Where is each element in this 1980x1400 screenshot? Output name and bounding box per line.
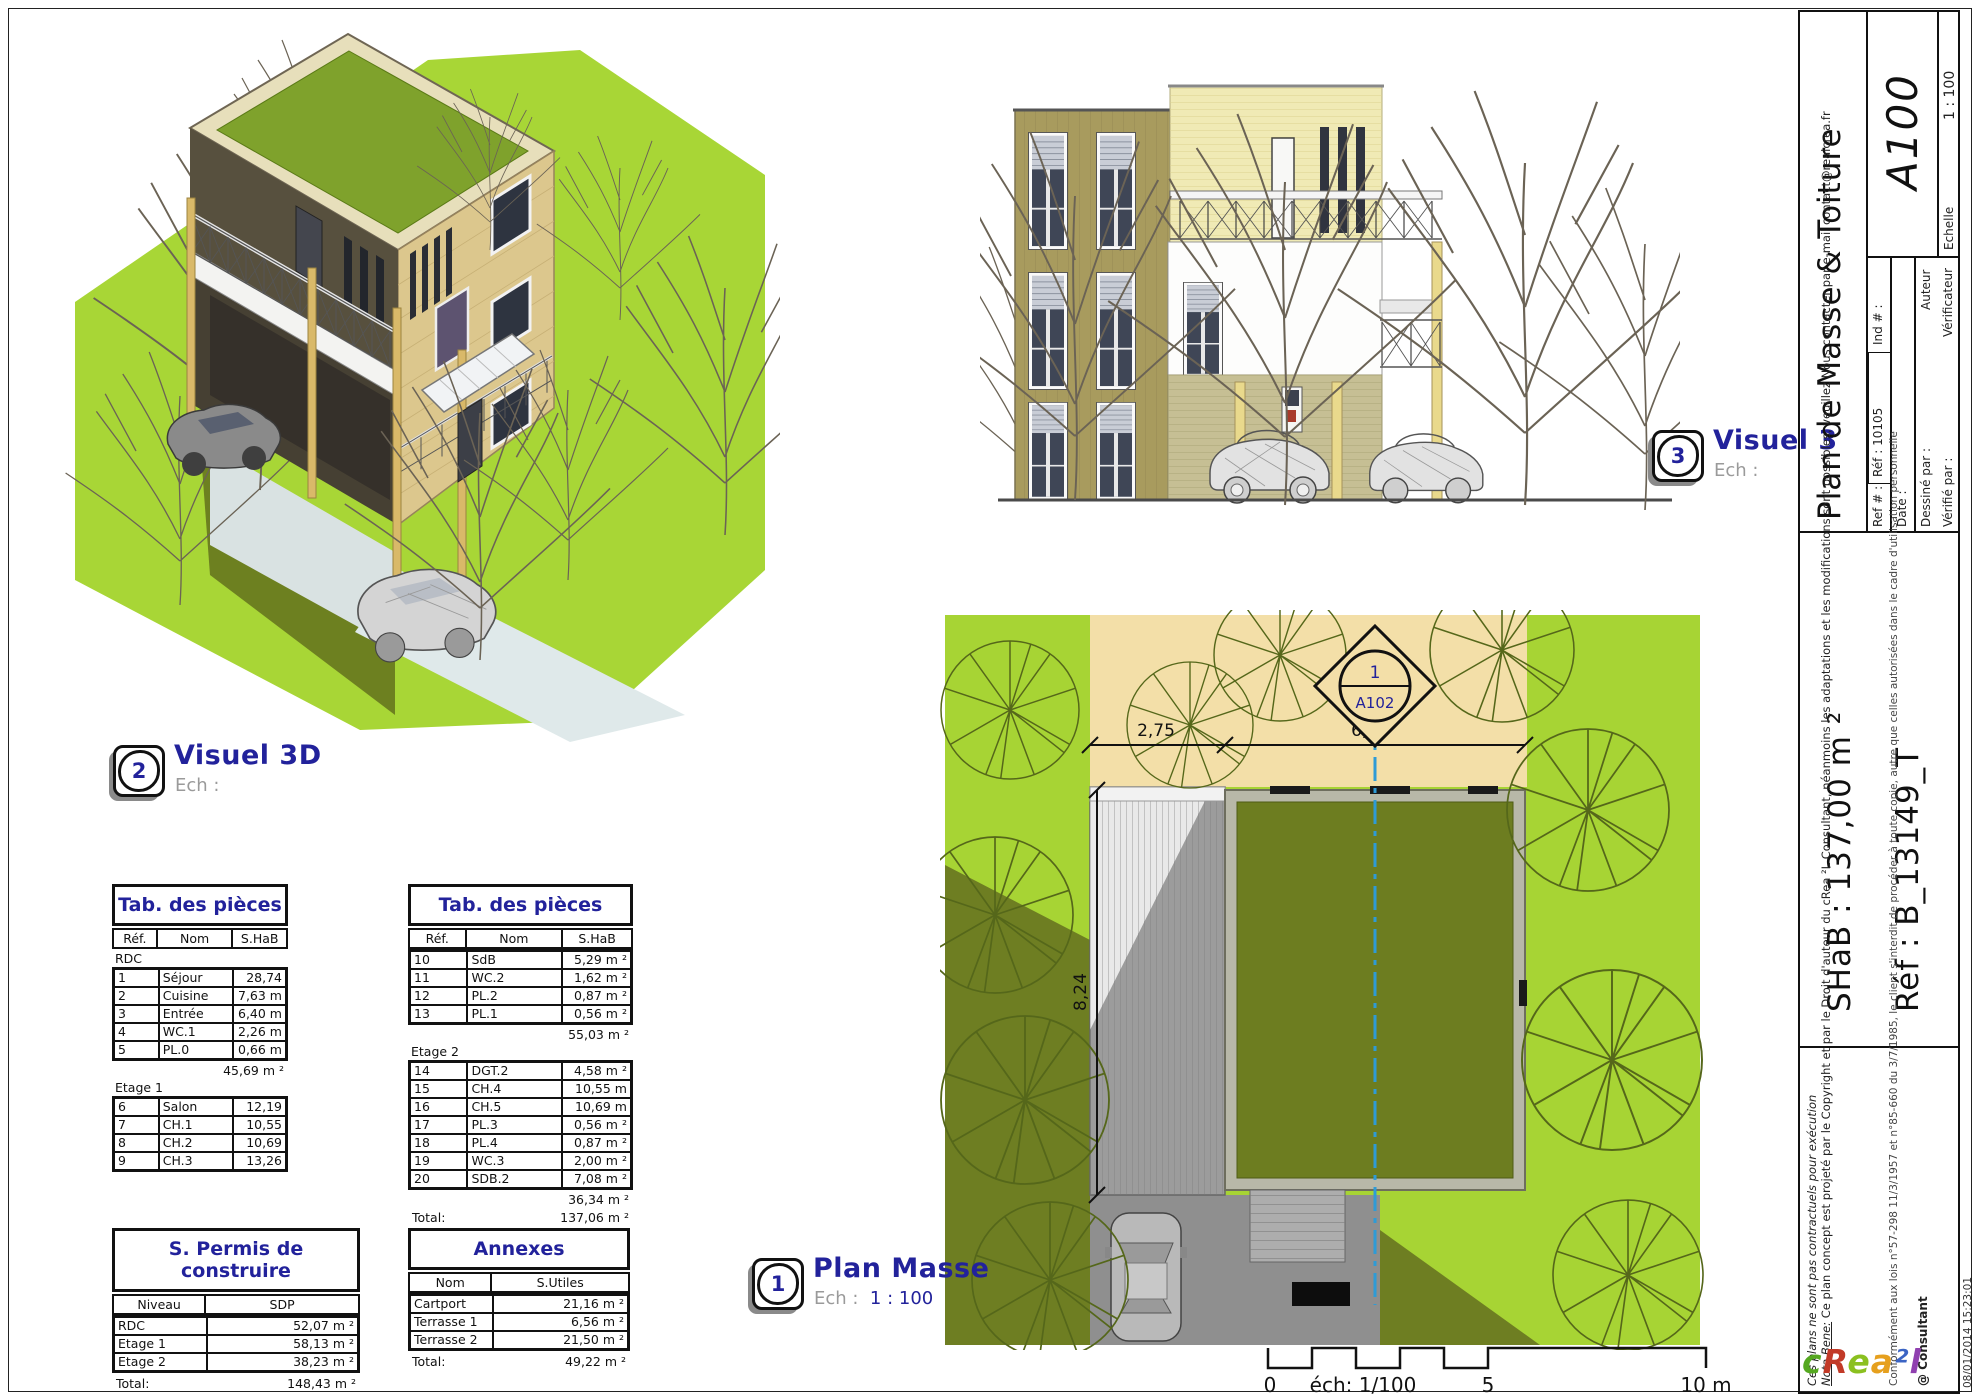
badge-visuel-3d: 2	[113, 745, 165, 797]
svg-text:10 m: 10 m	[1680, 1373, 1731, 1397]
table-rows: 1Séjour28,74 m ²2Cuisine7,63 m ²3Entrée6…	[112, 967, 288, 1061]
table-row: RDC52,07 m ²	[114, 1317, 358, 1335]
svg-text:éch: 1/100: éch: 1/100	[1310, 1373, 1417, 1397]
table-title: S. Permis de construire	[112, 1228, 360, 1292]
group-label: RDC	[112, 949, 288, 967]
legal-notice: Ces plans ne sont pas contractuels pour …	[1806, 1058, 1833, 1386]
table-row: 11WC.21,62 m ²	[410, 969, 631, 987]
crea2l-logo: cRea²l	[1802, 1342, 1922, 1381]
table-header: Réf.NomS.HaB	[112, 928, 288, 949]
table-header: NomS.Utiles	[408, 1272, 630, 1293]
table-row: 20SDB.27,08 m ²	[410, 1170, 631, 1188]
stairs-plan	[1250, 1190, 1345, 1262]
svg-text:5: 5	[1482, 1373, 1495, 1397]
table-rows: 10SdB5,29 m ²11WC.21,62 m ²12PL.20,87 m …	[408, 949, 633, 1025]
table-row: 4WC.12,26 m ²	[114, 1023, 286, 1041]
table-row: Etage 238,23 m ²	[114, 1353, 358, 1371]
table-row: 18PL.40,87 m ²	[410, 1134, 631, 1152]
svg-text:A102: A102	[1356, 694, 1395, 712]
table-row: 2Cuisine7,63 m ²	[114, 987, 286, 1005]
table-header: NiveauSDP	[112, 1294, 360, 1315]
subtotal: 55,03 m ²	[408, 1025, 633, 1042]
table-row: 6Salon12,19 m ²	[114, 1098, 286, 1116]
table-row: 10SdB5,29 m ²	[410, 951, 631, 969]
table-total: Total:137,06 m ²	[408, 1207, 633, 1225]
plan-masse-scale: Ech : 1 : 100	[814, 1288, 933, 1309]
table-row: 9CH.313,26 m ²	[114, 1152, 286, 1170]
doormat	[1292, 1282, 1350, 1306]
table-row: 17PL.30,56 m ²	[410, 1116, 631, 1134]
sheet-number: A100	[1878, 73, 1927, 190]
table-row: 15CH.410,55 m ²	[410, 1080, 631, 1098]
visual-3d-drawing	[60, 20, 780, 745]
table-row: Terrasse 221,50 m ²	[410, 1331, 628, 1349]
subtotal: 45,69 m ²	[112, 1061, 288, 1078]
carport-plan	[1090, 787, 1225, 1195]
table-row: Cartport21,16 m ²	[410, 1295, 628, 1313]
street-strip	[1090, 615, 1527, 787]
table-title: Tab. des pièces	[112, 884, 288, 926]
scale-label: Echelle	[1942, 207, 1956, 250]
subtotal: 36,34 m ²	[408, 1190, 633, 1207]
table-rows: RDC52,07 m ²Etage 158,13 m ²Etage 238,23…	[112, 1315, 360, 1373]
svg-text:1: 1	[1370, 663, 1381, 683]
table-row: 3Entrée6,40 m ²	[114, 1005, 286, 1023]
table-row: 8CH.210,69 m ²	[114, 1134, 286, 1152]
svg-text:0: 0	[1264, 1373, 1277, 1397]
group-label: Etage 1	[112, 1078, 288, 1096]
table-rows: Cartport21,16 m ²Terrasse 16,56 m ²Terra…	[408, 1293, 630, 1351]
table-row: Terrasse 16,56 m ²	[410, 1313, 628, 1331]
elevation-drawing	[980, 60, 1680, 510]
badge-number: 1	[757, 1263, 799, 1305]
table-row: 1Séjour28,74 m ²	[114, 969, 286, 987]
table-rows: 6Salon12,19 m ²7CH.110,55 m ²8CH.210,69 …	[112, 1096, 288, 1172]
badge-plan-masse: 1	[752, 1258, 804, 1310]
ref-label: Ref # :	[1871, 486, 1885, 527]
table-pieces-right: Tab. des pièces Réf.NomS.HaB 10SdB5,29 m…	[408, 884, 633, 1225]
table-row: 7CH.110,55 m ²	[114, 1116, 286, 1134]
table-row: 5PL.00,66 m ²	[114, 1041, 286, 1059]
badge-number: 3	[1657, 435, 1699, 477]
table-title: Annexes	[408, 1228, 630, 1270]
dim-vert: 8,24	[1071, 973, 1091, 1011]
group-label: Etage 2	[408, 1042, 633, 1060]
table-row: 19WC.32,00 m ²	[410, 1152, 631, 1170]
table-total: Total:148,43 m ²	[112, 1373, 360, 1391]
scale-value: 1 : 100	[1942, 71, 1958, 120]
visuel-3d-scale: Ech :	[175, 775, 219, 796]
visuel-3-scale: Ech :	[1714, 460, 1758, 481]
timestamp: 08/01/2014 15:23:01	[1962, 1277, 1974, 1388]
table-total: Total:49,22 m ²	[408, 1351, 630, 1369]
table-annexes: Annexes NomS.Utiles Cartport21,16 m ²Ter…	[408, 1228, 630, 1369]
dim-left: 2,75	[1137, 721, 1175, 741]
table-title: Tab. des pièces	[408, 884, 633, 926]
checked-label: Vérifié par :	[1941, 458, 1955, 527]
table-row: 16CH.510,69 m ²	[410, 1098, 631, 1116]
table-pieces-left: Tab. des pièces Réf.NomS.HaB RDC 1Séjour…	[112, 884, 288, 1172]
table-row: 12PL.20,87 m ²	[410, 987, 631, 1005]
car-in-carport	[167, 404, 280, 476]
scale-bar: 0 éch: 1/100 5 10 m	[1258, 1338, 1768, 1398]
table-row: 13PL.10,56 m ²	[410, 1005, 631, 1023]
visuel-3d-title: Visuel 3D	[174, 740, 322, 771]
car-wireframe	[1370, 434, 1483, 503]
car-plan	[1105, 1213, 1187, 1341]
table-row: 14DGT.24,58 m ²	[410, 1062, 631, 1080]
badge-visuel-3: 3	[1652, 430, 1704, 482]
table-rows: 14DGT.24,58 m ²15CH.410,55 m ²16CH.510,6…	[408, 1060, 633, 1190]
plan-masse-drawing: 2,75 6,39 8,24 1 A102	[940, 610, 1705, 1350]
table-permis: S. Permis de construire NiveauSDP RDC52,…	[112, 1228, 360, 1391]
legal-copyright: Conformément aux lois n°57-298 11/3/1957…	[1888, 1086, 1901, 1386]
badge-number: 2	[118, 750, 160, 792]
drawn-value: Auteur	[1919, 270, 1933, 310]
ref-value: Réf : 10105	[1871, 408, 1885, 477]
facade-right-block	[1168, 86, 1442, 500]
ind-label: Ind # :	[1871, 305, 1885, 346]
facade-left-block	[1013, 110, 1172, 500]
table-row: Etage 158,13 m ²	[114, 1335, 358, 1353]
drawn-label: Dessiné par :	[1919, 448, 1933, 527]
table-header: Réf.NomS.HaB	[408, 928, 633, 949]
checked-value: Vérificateur	[1941, 268, 1955, 337]
plan-masse-title: Plan Masse	[813, 1253, 989, 1284]
